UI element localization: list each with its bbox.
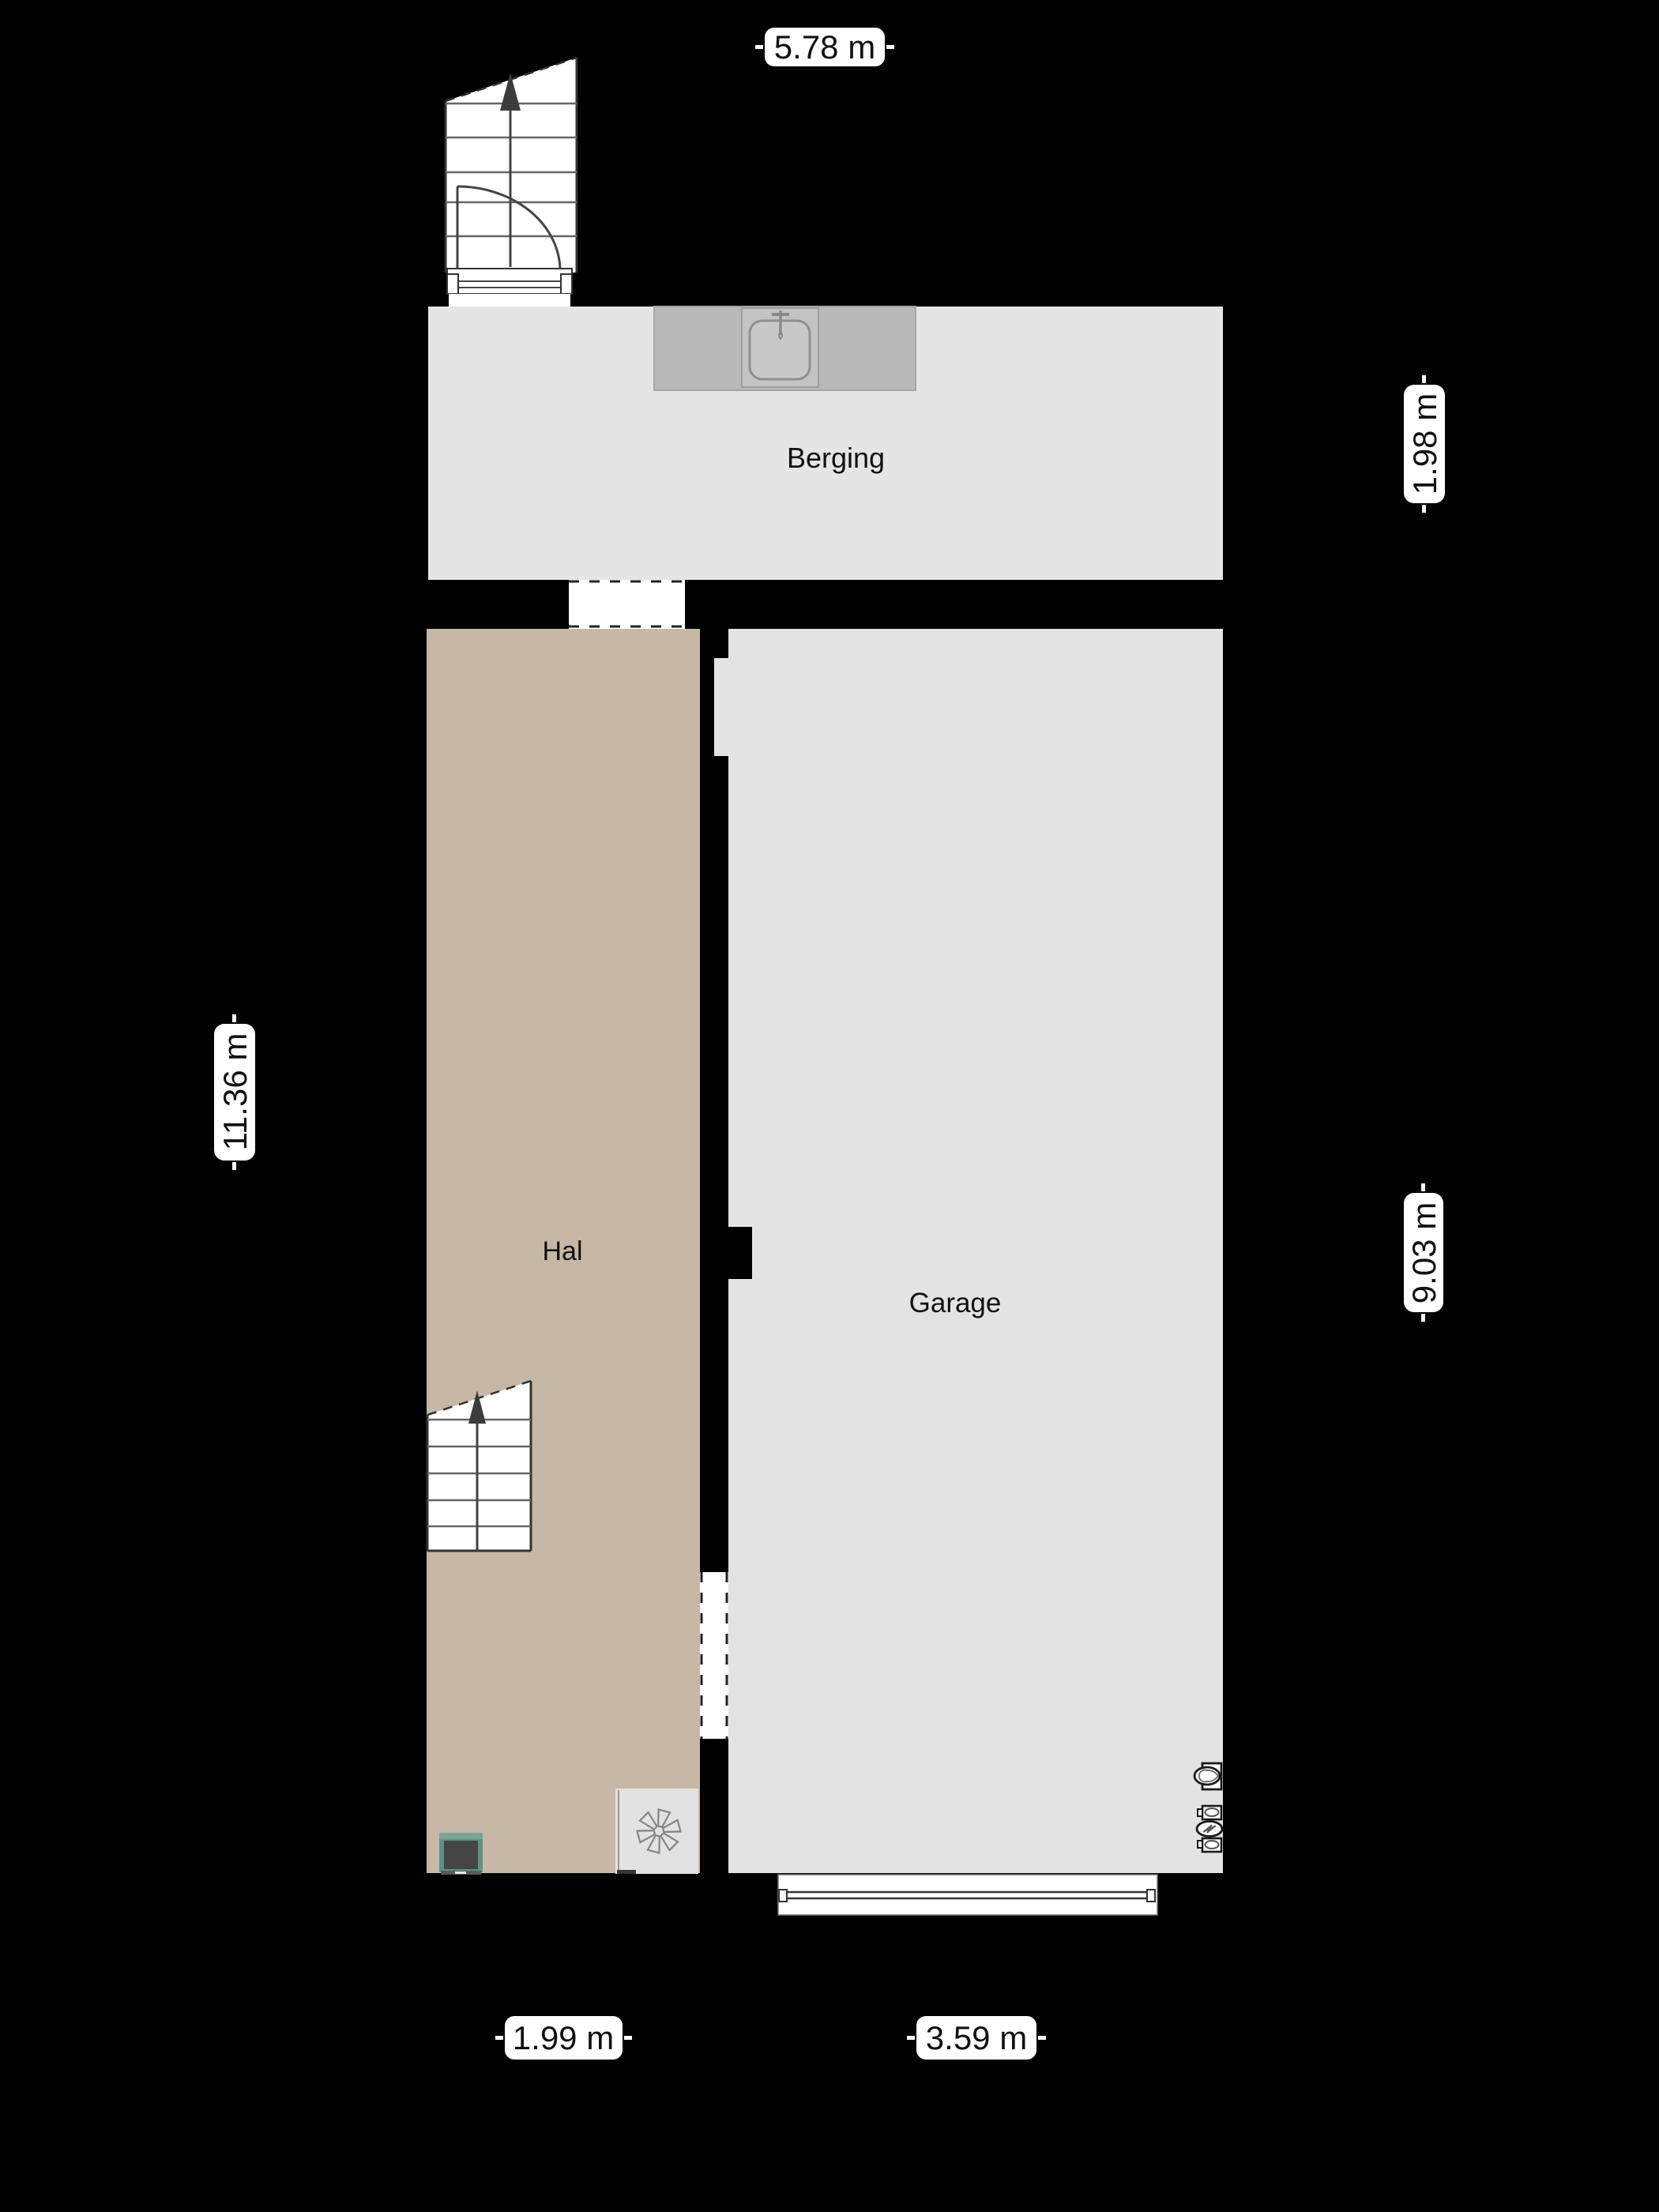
svg-text:Berging: Berging	[787, 442, 885, 474]
svg-text:1.99 m: 1.99 m	[513, 2019, 614, 2056]
svg-text:9.03 m: 9.03 m	[1405, 1202, 1443, 1303]
svg-text:5.78 m: 5.78 m	[774, 28, 875, 66]
svg-text:Hal: Hal	[542, 1236, 582, 1266]
svg-text:1.98 m: 1.98 m	[1406, 393, 1443, 495]
svg-text:3.59 m: 3.59 m	[926, 2019, 1027, 2056]
svg-text:Garage: Garage	[909, 1288, 1002, 1319]
svg-text:11.36 m: 11.36 m	[216, 1033, 254, 1151]
